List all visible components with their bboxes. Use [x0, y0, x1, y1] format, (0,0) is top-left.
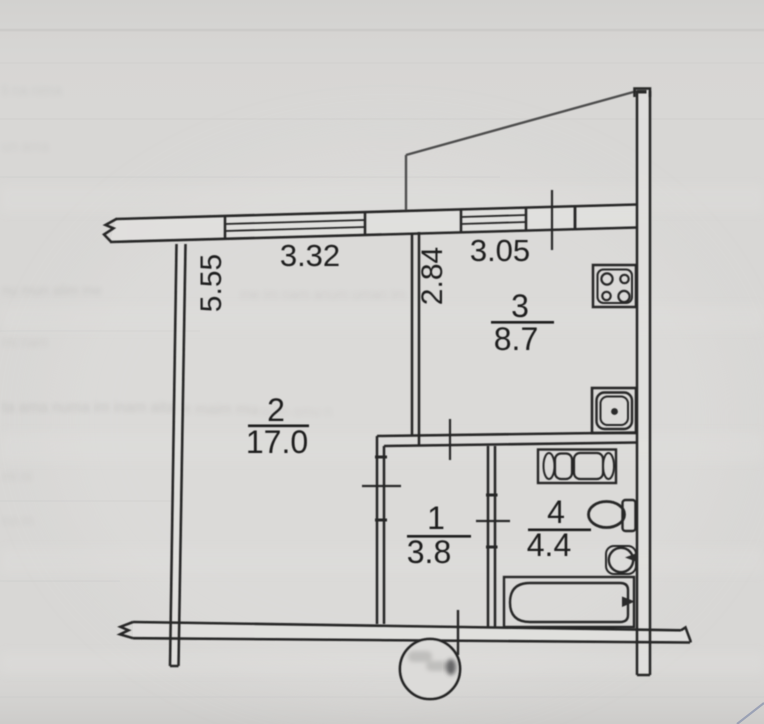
svg-text:3.32: 3.32 [280, 238, 340, 273]
svg-text:8.7: 8.7 [494, 321, 538, 357]
svg-text:me im nam anum uman im: me im nam anum uman im [240, 286, 406, 302]
svg-text:mi ni: mi ni [2, 468, 32, 484]
svg-text:ta ama numa im inam aita: ta ama numa im inam aita [2, 399, 175, 416]
svg-text:mi nam: mi nam [2, 334, 48, 350]
svg-text:nu mun alim me: nu mun alim me [2, 282, 102, 298]
svg-text:3.8: 3.8 [407, 534, 451, 570]
svg-text:2.84: 2.84 [416, 247, 449, 305]
svg-text:3: 3 [511, 288, 529, 324]
svg-text:1: 1 [427, 500, 445, 536]
svg-text:im maim mu: im maim mu [175, 401, 257, 418]
svg-text:4.4: 4.4 [527, 527, 571, 563]
svg-text:4: 4 [547, 494, 565, 530]
svg-text:2: 2 [267, 392, 285, 428]
svg-text:17.0: 17.0 [246, 424, 308, 460]
svg-text:3.05: 3.05 [470, 233, 530, 268]
svg-text:un ama: un ama [2, 138, 49, 154]
svg-text:5.55: 5.55 [195, 254, 228, 312]
svg-text:li na nima: li na nima [2, 82, 62, 98]
svg-text:na m: na m [2, 512, 33, 528]
